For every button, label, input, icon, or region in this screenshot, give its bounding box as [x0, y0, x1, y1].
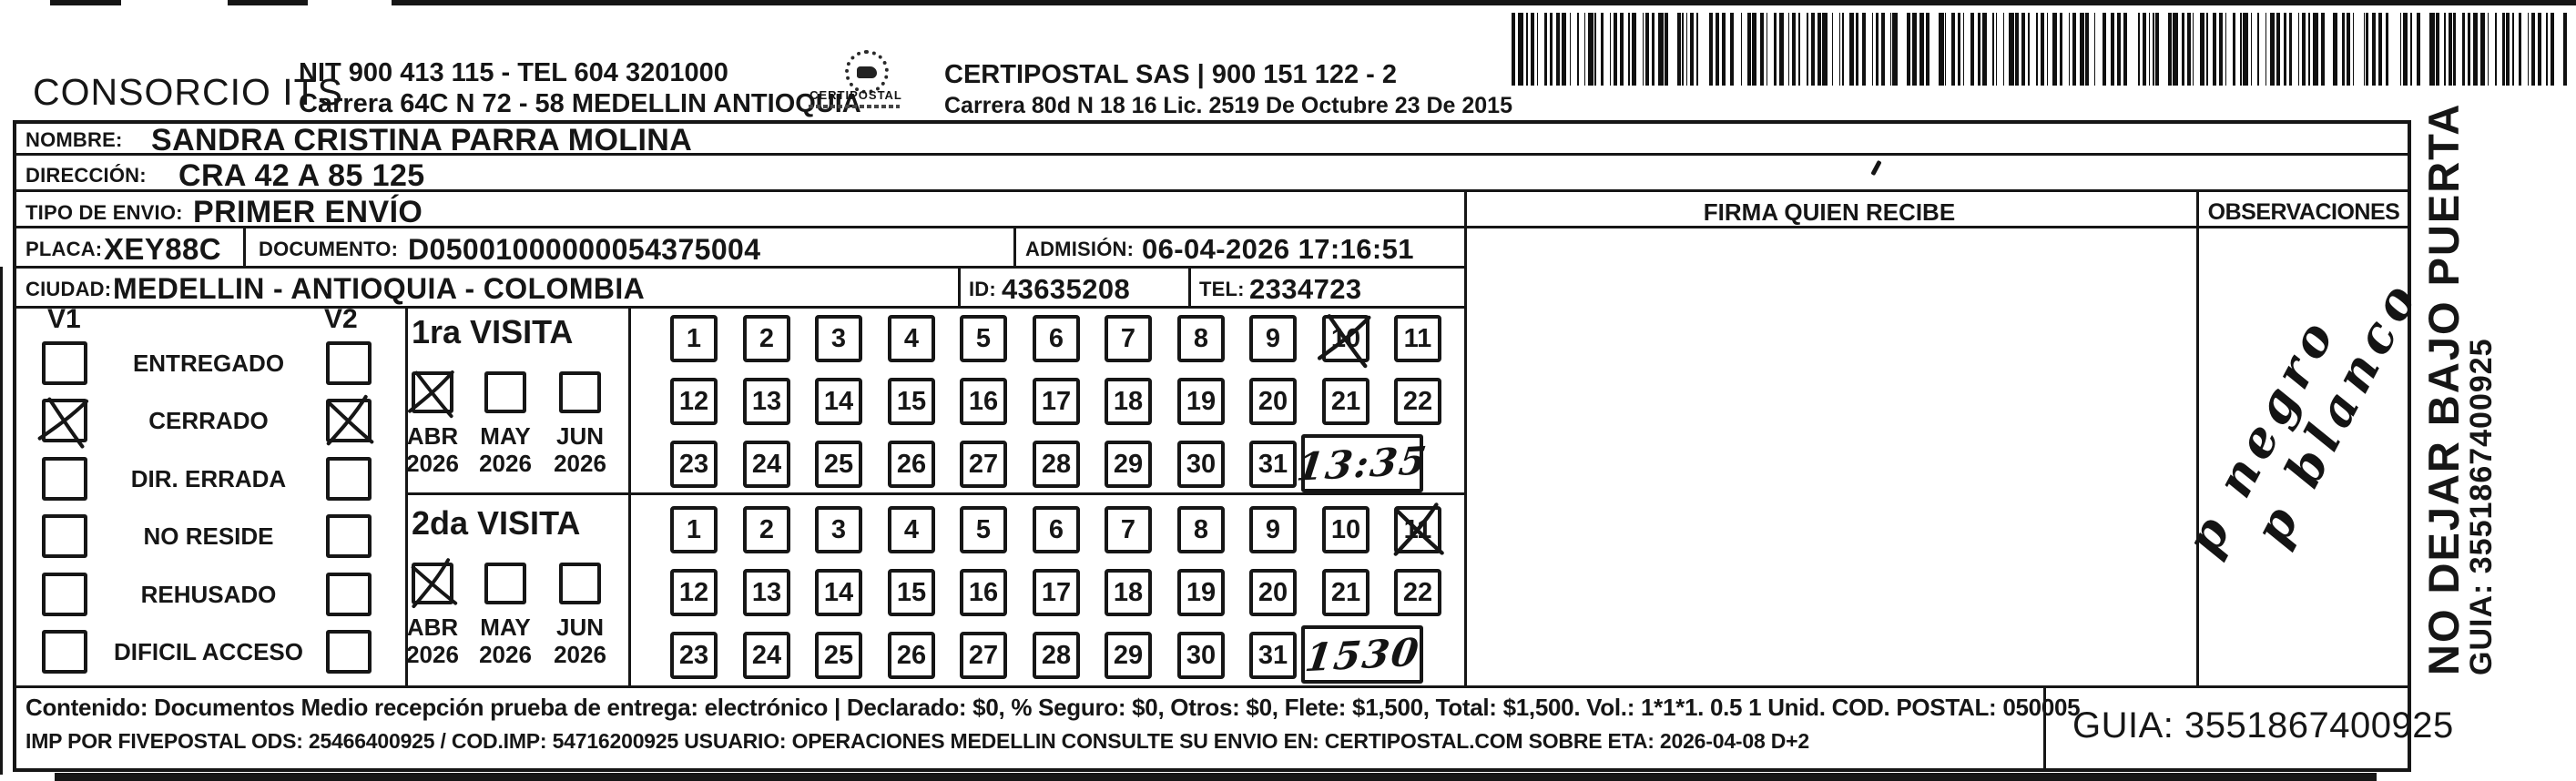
v1-checkbox-dificil-acceso[interactable]	[42, 630, 87, 674]
logo-caption: CERTIPOSTAL	[805, 88, 907, 102]
logo-ring-icon	[845, 50, 889, 94]
barcode	[1512, 13, 2568, 86]
v2-checkbox-rehusado[interactable]	[326, 573, 372, 616]
visit2-month-label-may: MAY	[469, 614, 542, 642]
visit2-month-year-jun: 2026	[544, 641, 616, 669]
visit1-day-8[interactable]: 8	[1177, 315, 1225, 362]
contenido-line: Contenido: Documentos Medio recepción pr…	[25, 694, 2080, 722]
handwritten-x-mark	[404, 555, 461, 612]
tel-value: 2334723	[1249, 273, 1362, 306]
placa-label: PLACA:	[25, 238, 102, 261]
visit1-day-29[interactable]: 29	[1105, 441, 1152, 488]
grid-vline-2	[958, 268, 961, 309]
visit1-day-22[interactable]: 22	[1394, 378, 1441, 425]
visit2-day-24[interactable]: 24	[743, 632, 790, 679]
status-label-dificil-acceso: DIFICIL ACCESO	[98, 638, 319, 666]
visit2-day-25[interactable]: 25	[815, 632, 862, 679]
visit2-day-21[interactable]: 21	[1322, 569, 1369, 616]
status-label-dir-errada: DIR. ERRADA	[98, 465, 319, 493]
visit2-day-27[interactable]: 27	[960, 632, 1007, 679]
visit1-day-25[interactable]: 25	[815, 441, 862, 488]
admision-value: 06-04-2026 17:16:51	[1142, 233, 1414, 266]
visit1-day-20[interactable]: 20	[1249, 378, 1297, 425]
visit1-day-19[interactable]: 19	[1177, 378, 1225, 425]
visit1-day-6[interactable]: 6	[1033, 315, 1080, 362]
visit2-day-29[interactable]: 29	[1105, 632, 1152, 679]
visit2-day-30[interactable]: 30	[1177, 632, 1225, 679]
visit2-day-8[interactable]: 8	[1177, 506, 1225, 553]
visit2-day-26[interactable]: 26	[888, 632, 935, 679]
guia-number-vertical-text: GUIA: 3551867400925	[2464, 338, 2500, 675]
delivery-form-scan: CONSORCIO ITS NIT 900 413 115 - TEL 604 …	[0, 0, 2576, 781]
handwritten-x-mark	[405, 365, 460, 420]
v2-checkbox-no-reside[interactable]	[326, 514, 372, 558]
visit1-day-9[interactable]: 9	[1249, 315, 1297, 362]
logo-tagline-squiggle	[809, 105, 900, 108]
visit2-day-6[interactable]: 6	[1033, 506, 1080, 553]
status-label-no-reside: NO RESIDE	[98, 522, 319, 551]
visit1-day-18[interactable]: 18	[1105, 378, 1152, 425]
visit1-day-14[interactable]: 14	[815, 378, 862, 425]
visit2-day-10[interactable]: 10	[1322, 506, 1369, 553]
grid-vline-8	[2043, 687, 2046, 772]
visit1-day-17[interactable]: 17	[1033, 378, 1080, 425]
visit1-handwritten-time: 13:35	[1294, 438, 1431, 489]
grid-hline-4	[13, 306, 1466, 309]
visit1-day-23[interactable]: 23	[670, 441, 718, 488]
visit1-time-box[interactable]: 13:35	[1301, 434, 1423, 492]
consorcio-title: CONSORCIO ITS	[33, 71, 343, 114]
direccion-label: DIRECCIÓN:	[25, 164, 147, 188]
scan-edge-line-1	[228, 0, 308, 5]
visit1-month-abr-checkbox[interactable]	[412, 371, 453, 413]
v2-checkbox-entregado[interactable]	[326, 341, 372, 385]
visit2-day-14[interactable]: 14	[815, 569, 862, 616]
scan-edge-line-2	[392, 0, 2576, 5]
v1-checkbox-rehusado[interactable]	[42, 573, 87, 616]
tel-label: TEL:	[1199, 278, 1245, 301]
status-label-entregado: ENTREGADO	[98, 350, 319, 378]
visit2-month-year-may: 2026	[469, 641, 542, 669]
visit1-day-12[interactable]: 12	[670, 378, 718, 425]
v2-checkbox-dir-errada[interactable]	[326, 457, 372, 501]
visit1-day-30[interactable]: 30	[1177, 441, 1225, 488]
status-label-rehusado: REHUSADO	[98, 581, 319, 609]
visit2-day-17[interactable]: 17	[1033, 569, 1080, 616]
imp-line: IMP POR FIVEPOSTAL ODS: 25466400925 / CO…	[25, 729, 1809, 754]
visit2-month-may-checkbox[interactable]	[484, 563, 526, 604]
visit1-day-10[interactable]: 10	[1322, 315, 1369, 362]
visit1-month-year-abr: 2026	[396, 450, 469, 478]
visit1-day-16[interactable]: 16	[960, 378, 1007, 425]
v1-checkbox-cerrado[interactable]	[42, 399, 87, 442]
v1-checkbox-dir-errada[interactable]	[42, 457, 87, 501]
visit2-day-20[interactable]: 20	[1249, 569, 1297, 616]
nombre-label: NOMBRE:	[25, 128, 123, 152]
logo-seal-icon	[857, 66, 877, 78]
handwritten-x-mark	[320, 391, 379, 449]
visit1-day-27[interactable]: 27	[960, 441, 1007, 488]
visit2-day-3[interactable]: 3	[815, 506, 862, 553]
visit1-day-2[interactable]: 2	[743, 315, 790, 362]
visit2-month-abr-checkbox[interactable]	[412, 563, 453, 604]
certipostal-address-line: Carrera 80d N 18 16 Lic. 2519 De Octubre…	[944, 93, 1512, 119]
visit1-month-label-jun: JUN	[544, 422, 616, 451]
v1-column-header: V1	[47, 304, 81, 335]
visit1-day-1[interactable]: 1	[670, 315, 718, 362]
consorcio-nit-line: NIT 900 413 115 - TEL 604 3201000	[299, 58, 728, 88]
ciudad-value: MEDELLIN - ANTIOQUIA - COLOMBIA	[113, 272, 645, 306]
visit1-day-4[interactable]: 4	[888, 315, 935, 362]
certipostal-title-line: CERTIPOSTAL SAS | 900 151 122 - 2	[944, 60, 1397, 90]
guia-number-box-text: GUIA: 3551867400925	[2072, 705, 2454, 746]
visit2-day-13[interactable]: 13	[743, 569, 790, 616]
visit2-day-12[interactable]: 12	[670, 569, 718, 616]
visit1-day-28[interactable]: 28	[1033, 441, 1080, 488]
grid-vline-0	[243, 228, 246, 269]
grid-vline-3	[1188, 268, 1191, 309]
visit2-time-box[interactable]: 1530	[1301, 625, 1423, 684]
visit2-day-18[interactable]: 18	[1105, 569, 1152, 616]
visit1-day-5[interactable]: 5	[960, 315, 1007, 362]
v2-checkbox-cerrado[interactable]	[326, 399, 372, 442]
scan-edge-line-3	[55, 773, 2377, 781]
v2-column-header: V2	[324, 304, 358, 335]
visit1-day-26[interactable]: 26	[888, 441, 935, 488]
handwritten-x-mark	[1314, 307, 1377, 370]
v1-checkbox-no-reside[interactable]	[42, 514, 87, 558]
grid-vline-1	[1013, 228, 1016, 269]
visit1-month-jun-checkbox[interactable]	[559, 371, 601, 413]
visit2-handwritten-time: 1530	[1302, 629, 1422, 679]
documento-value: D05001000000054375004	[408, 233, 760, 267]
visit1-day-21[interactable]: 21	[1322, 378, 1369, 425]
v1-checkbox-entregado[interactable]	[42, 341, 87, 385]
visit2-day-15[interactable]: 15	[888, 569, 935, 616]
status-label-cerrado: CERRADO	[98, 407, 319, 435]
visit2-day-9[interactable]: 9	[1249, 506, 1297, 553]
visit2-day-4[interactable]: 4	[888, 506, 935, 553]
signature-area[interactable]	[1468, 229, 2193, 685]
visit2-day-28[interactable]: 28	[1033, 632, 1080, 679]
visit1-day-11[interactable]: 11	[1394, 315, 1441, 362]
grid-hline-3	[13, 266, 1466, 269]
observaciones-header: OBSERVACIONES	[2196, 199, 2411, 226]
visit2-month-label-jun: JUN	[544, 614, 616, 642]
id-value: 43635208	[1002, 273, 1130, 306]
visit2-month-jun-checkbox[interactable]	[559, 563, 601, 604]
visit2-day-5[interactable]: 5	[960, 506, 1007, 553]
visit2-day-31[interactable]: 31	[1249, 632, 1297, 679]
visit1-day-3[interactable]: 3	[815, 315, 862, 362]
id-label: ID:	[969, 278, 996, 301]
documento-label: DOCUMENTO:	[259, 238, 398, 261]
visit1-month-year-jun: 2026	[544, 450, 616, 478]
grid-hline-5	[405, 492, 1464, 495]
visit2-day-1[interactable]: 1	[670, 506, 718, 553]
firma-header: FIRMA QUIEN RECIBE	[1464, 198, 2194, 227]
visit1-day-24[interactable]: 24	[743, 441, 790, 488]
grid-vline-5	[628, 308, 631, 687]
consorcio-address-line: Carrera 64C N 72 - 58 MEDELLIN ANTIOQUIA	[299, 89, 861, 119]
visit1-day-13[interactable]: 13	[743, 378, 790, 425]
visit1-month-year-may: 2026	[469, 450, 542, 478]
scan-edge-line-0	[50, 0, 121, 5]
scan-edge-line-4	[0, 267, 3, 775]
visit2-day-16[interactable]: 16	[960, 569, 1007, 616]
ciudad-label: CIUDAD:	[25, 278, 111, 301]
visit1-month-label-abr: ABR	[396, 422, 469, 451]
grid-hline-0	[13, 153, 2411, 156]
handwritten-x-mark	[34, 390, 95, 451]
visit-1-title: 1ra VISITA	[412, 313, 573, 351]
admision-label: ADMISIÓN:	[1025, 238, 1134, 261]
visit2-day-2[interactable]: 2	[743, 506, 790, 553]
visit2-day-23[interactable]: 23	[670, 632, 718, 679]
visit2-month-year-abr: 2026	[396, 641, 469, 669]
visit1-month-label-may: MAY	[469, 422, 542, 451]
no-dejar-bajo-puerta-vertical-text: NO DEJAR BAJO PUERTA	[2418, 103, 2469, 675]
tipo-envio-label: TIPO DE ENVIO:	[25, 201, 183, 225]
visit2-day-22[interactable]: 22	[1394, 569, 1441, 616]
grid-vline-7	[2196, 191, 2199, 687]
visit1-month-may-checkbox[interactable]	[484, 371, 526, 413]
visit2-month-label-abr: ABR	[396, 614, 469, 642]
visit-2-title: 2da VISITA	[412, 504, 580, 543]
grid-hline-2	[13, 226, 2411, 228]
grid-hline-1	[13, 189, 2411, 192]
visit2-day-7[interactable]: 7	[1105, 506, 1152, 553]
visit1-day-31[interactable]: 31	[1249, 441, 1297, 488]
visit1-day-7[interactable]: 7	[1105, 315, 1152, 362]
visit1-day-15[interactable]: 15	[888, 378, 935, 425]
v2-checkbox-dificil-acceso[interactable]	[326, 630, 372, 674]
placa-value: XEY88C	[104, 232, 221, 267]
handwritten-x-mark	[1388, 500, 1448, 560]
grid-vline-6	[1464, 191, 1467, 687]
visit2-day-19[interactable]: 19	[1177, 569, 1225, 616]
visit2-day-11[interactable]: 11	[1394, 506, 1441, 553]
grid-hline-6	[13, 685, 2411, 688]
